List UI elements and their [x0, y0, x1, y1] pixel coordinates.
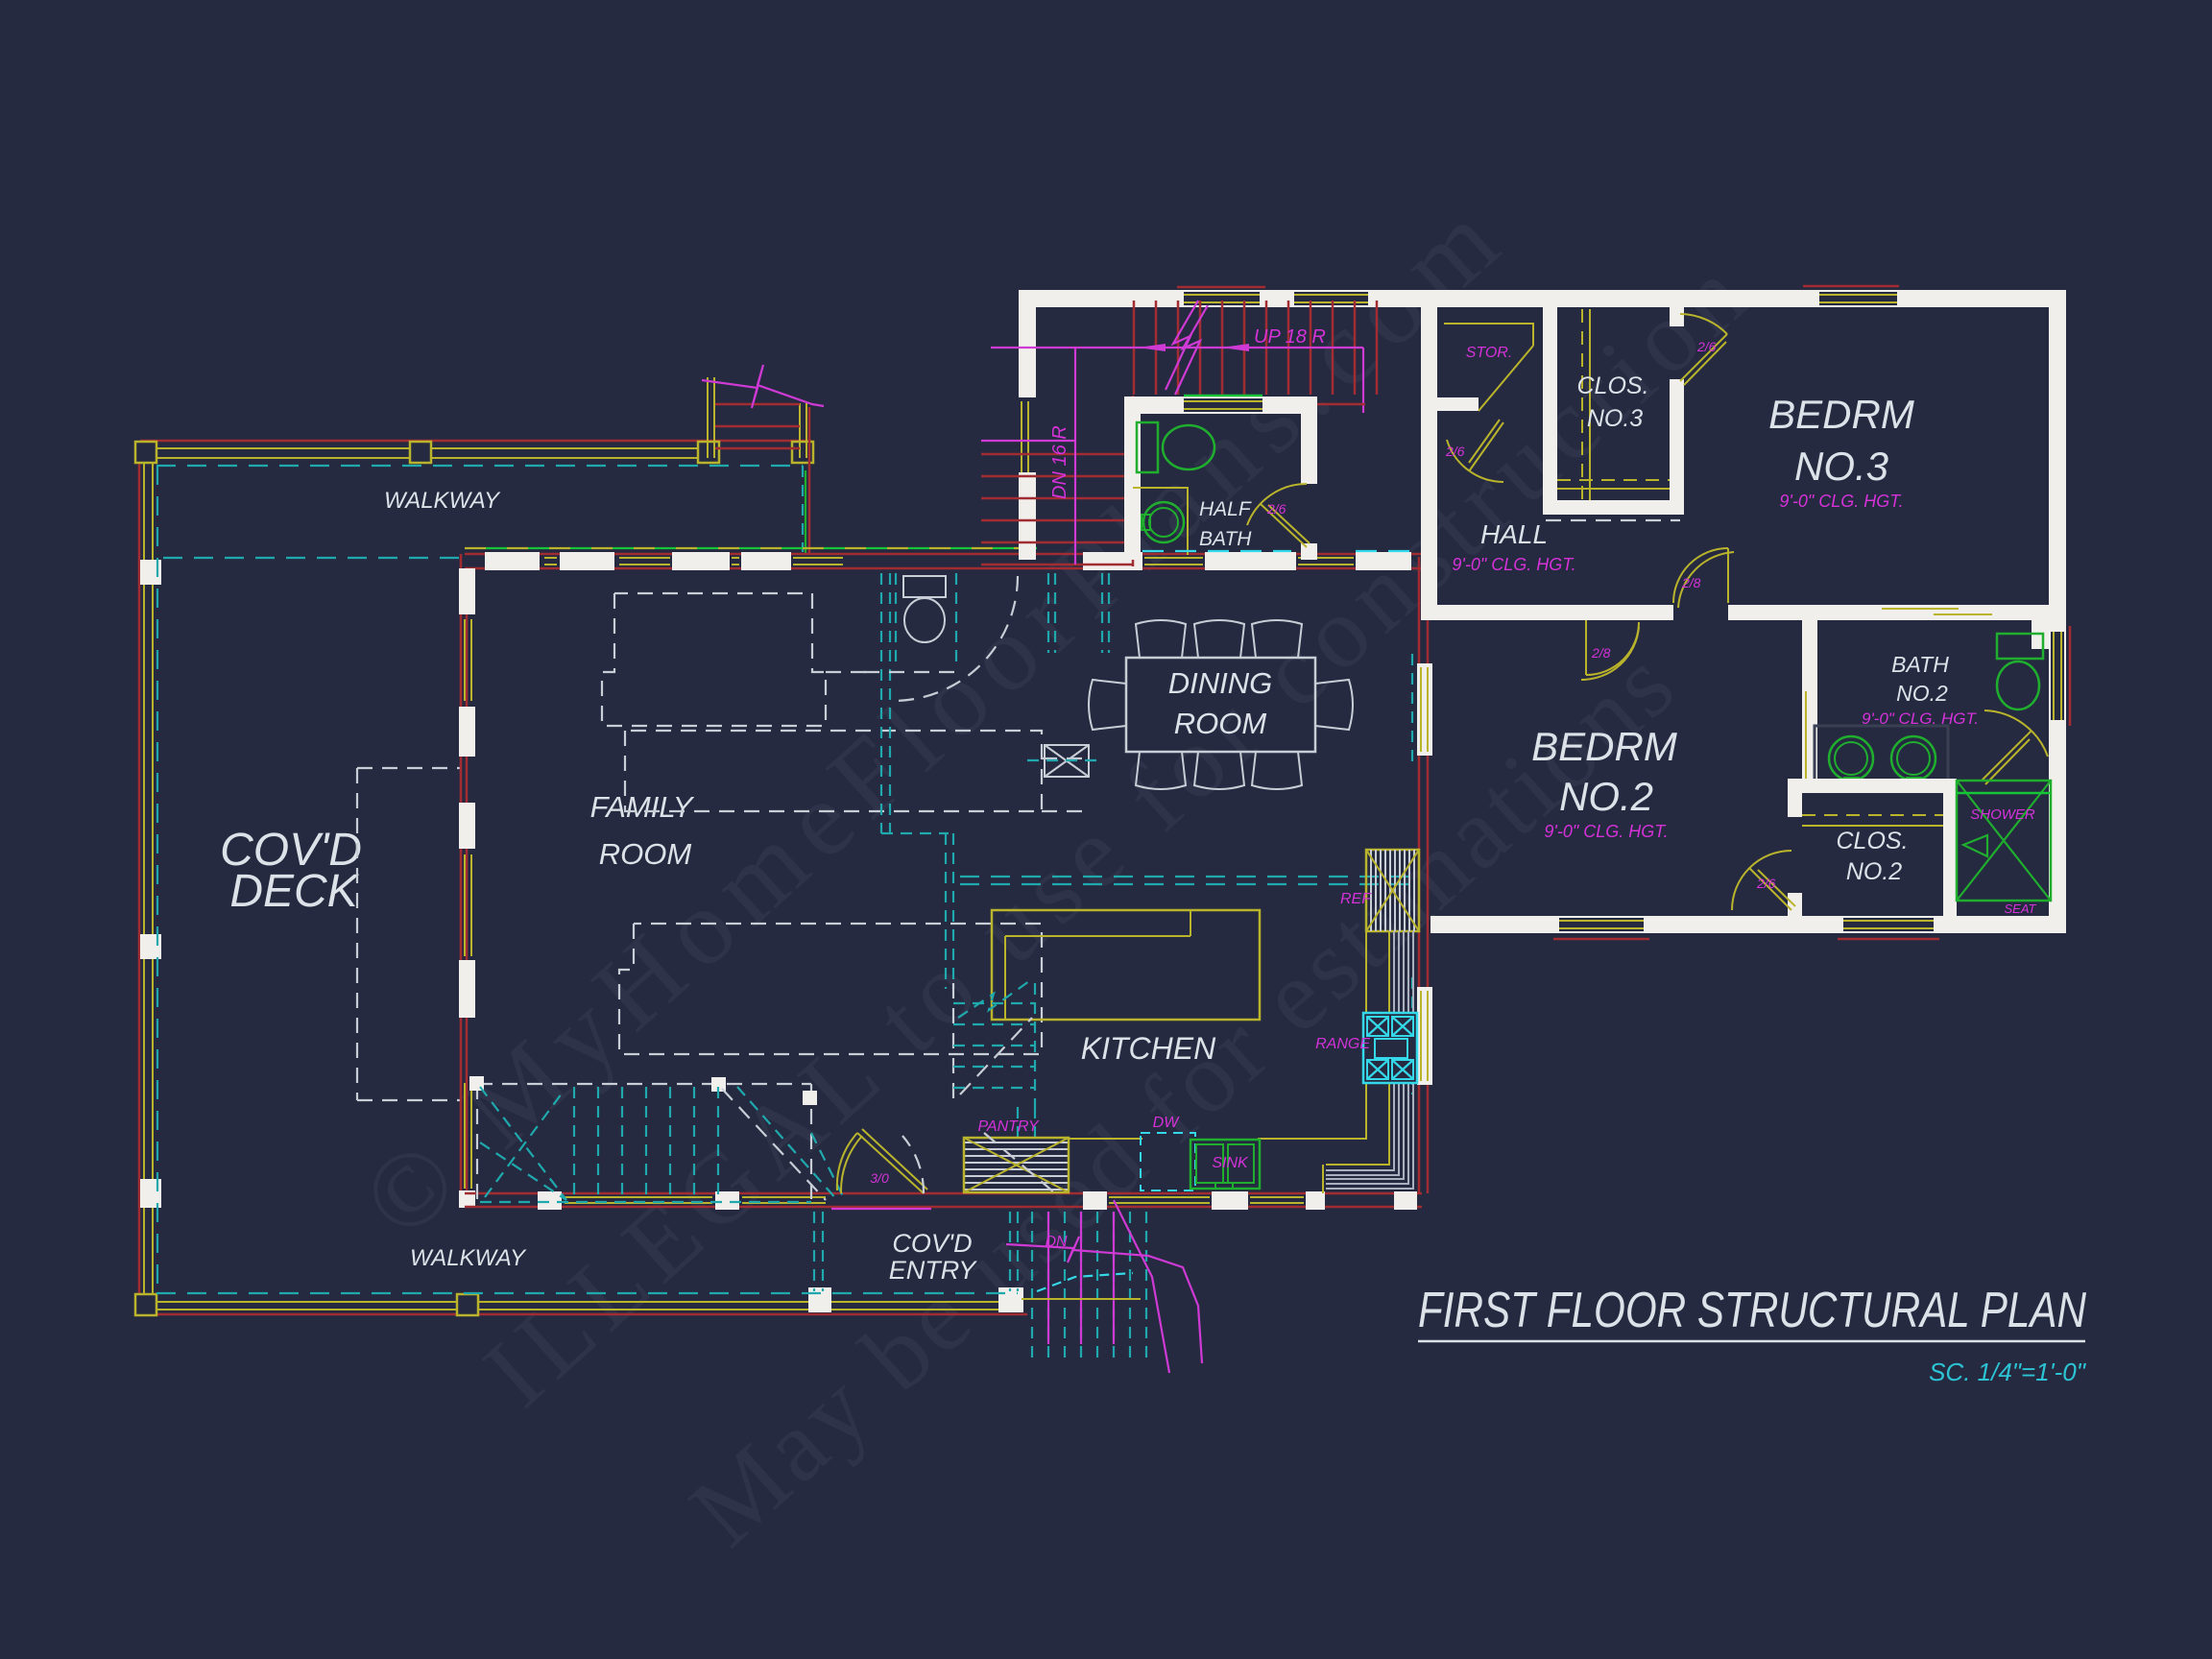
svg-text:ROOM: ROOM: [1174, 707, 1267, 740]
svg-text:RANGE: RANGE: [1315, 1036, 1370, 1052]
svg-text:STOR.: STOR.: [1466, 345, 1513, 361]
svg-text:2/6: 2/6: [1696, 339, 1717, 354]
svg-text:2/8: 2/8: [1591, 645, 1611, 661]
svg-text:WALKWAY: WALKWAY: [384, 488, 501, 514]
svg-text:NO.3: NO.3: [1587, 405, 1643, 432]
svg-text:NO.2: NO.2: [1846, 858, 1902, 885]
svg-text:KITCHEN: KITCHEN: [1081, 1031, 1216, 1066]
svg-text:HALL: HALL: [1480, 519, 1548, 549]
svg-text:SEAT: SEAT: [2005, 902, 2037, 916]
svg-text:9'-0" CLG. HGT.: 9'-0" CLG. HGT.: [1544, 822, 1668, 841]
svg-text:DECK: DECK: [229, 866, 359, 917]
svg-text:FAMILY: FAMILY: [590, 790, 695, 824]
svg-text:SC. 1/4"=1'-0": SC. 1/4"=1'-0": [1929, 1358, 2087, 1386]
svg-text:DINING: DINING: [1168, 666, 1273, 700]
svg-text:UP 18 R: UP 18 R: [1254, 326, 1326, 348]
svg-text:ENTRY: ENTRY: [889, 1256, 977, 1285]
svg-text:BATH: BATH: [1891, 652, 1949, 677]
svg-text:NO.2: NO.2: [1559, 774, 1653, 819]
svg-text:DN 16 R: DN 16 R: [1049, 425, 1070, 499]
svg-text:NO.3: NO.3: [1794, 444, 1888, 489]
svg-text:FIRST FLOOR STRUCTURAL PLAN: FIRST FLOOR STRUCTURAL PLAN: [1418, 1283, 2086, 1338]
svg-text:BEDRM: BEDRM: [1531, 724, 1677, 769]
svg-text:DN: DN: [1045, 1234, 1068, 1250]
svg-text:BEDRM: BEDRM: [1768, 392, 1914, 437]
svg-text:ROOM: ROOM: [599, 837, 692, 871]
svg-text:NO.2: NO.2: [1896, 681, 1948, 706]
svg-text:3/0: 3/0: [870, 1170, 889, 1186]
svg-text:9'-0" CLG. HGT.: 9'-0" CLG. HGT.: [1779, 492, 1903, 511]
svg-text:SINK: SINK: [1212, 1155, 1249, 1171]
svg-text:SHOWER: SHOWER: [1970, 806, 2035, 823]
svg-text:HALF: HALF: [1199, 498, 1252, 520]
svg-text:COV'D: COV'D: [892, 1229, 972, 1258]
svg-text:2/8: 2/8: [1681, 575, 1701, 590]
svg-text:WALKWAY: WALKWAY: [410, 1245, 527, 1271]
svg-text:CLOS.: CLOS.: [1576, 373, 1648, 399]
svg-text:2/6: 2/6: [1445, 444, 1465, 459]
svg-text:PANTRY: PANTRY: [977, 1118, 1039, 1135]
svg-text:DW: DW: [1153, 1115, 1181, 1131]
svg-text:BATH: BATH: [1199, 528, 1252, 550]
svg-text:REF: REF: [1340, 891, 1372, 907]
svg-text:9'-0" CLG. HGT.: 9'-0" CLG. HGT.: [1452, 555, 1575, 574]
svg-text:CLOS.: CLOS.: [1836, 828, 1908, 854]
svg-text:2/6: 2/6: [1756, 876, 1776, 891]
svg-text:2/6: 2/6: [1266, 501, 1286, 517]
